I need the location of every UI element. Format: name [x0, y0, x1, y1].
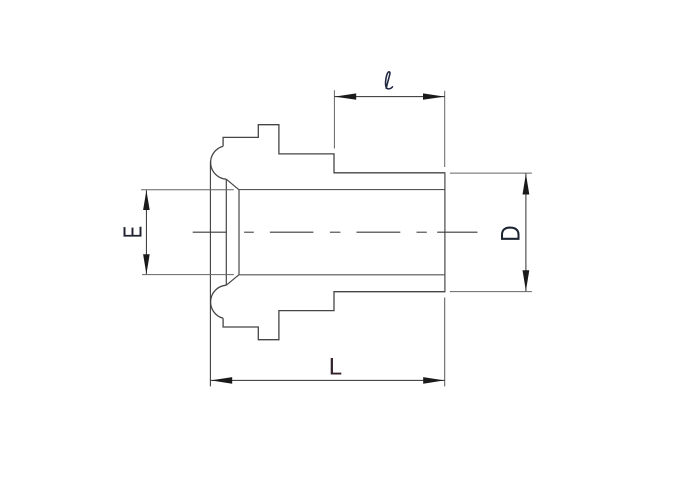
svg-text:D: D — [496, 225, 526, 241]
svg-text:L: L — [329, 353, 342, 380]
svg-text:E: E — [118, 226, 147, 238]
